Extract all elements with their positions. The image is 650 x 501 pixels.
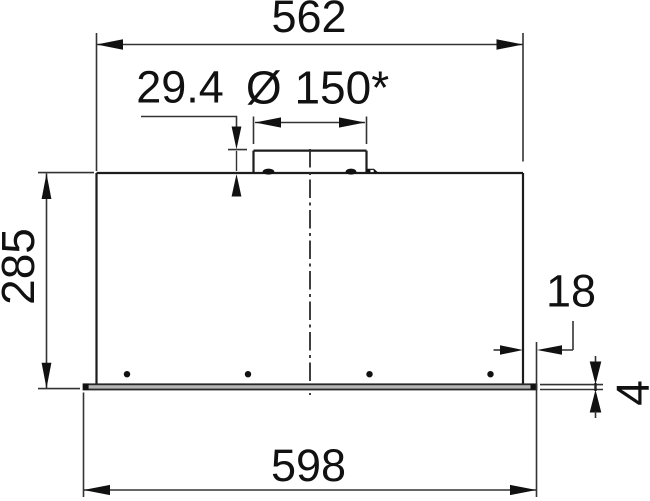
svg-text:Ø 150*: Ø 150* bbox=[246, 62, 389, 114]
svg-text:598: 598 bbox=[271, 440, 346, 491]
svg-text:4: 4 bbox=[607, 380, 650, 406]
svg-text:562: 562 bbox=[271, 0, 346, 42]
svg-text:29.4: 29.4 bbox=[136, 62, 224, 113]
svg-text:18: 18 bbox=[546, 266, 596, 317]
svg-text:285: 285 bbox=[0, 228, 44, 305]
